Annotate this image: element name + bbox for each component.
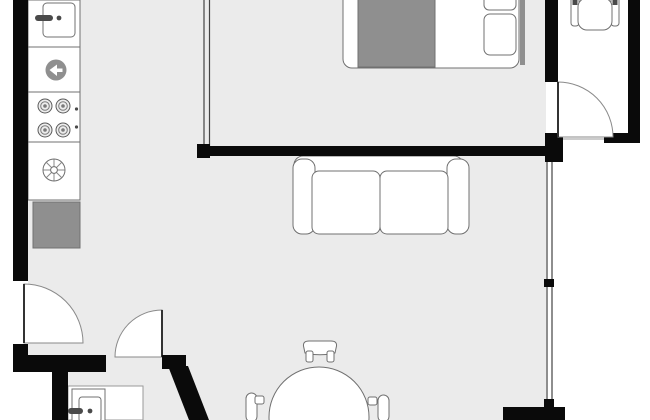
burner-icon — [56, 99, 70, 113]
bathroom-sink-basin — [79, 397, 101, 420]
wall-balcony-left — [545, 0, 558, 82]
balcony-chair-hinge-icon — [613, 0, 618, 5]
stove-knob-icon — [75, 107, 78, 110]
burner-icon — [56, 123, 70, 137]
bathroom-sink — [68, 389, 105, 420]
wall-bathroom-stem — [52, 372, 68, 420]
burner-icon — [38, 123, 52, 137]
window-mullion — [544, 279, 554, 287]
balcony-chair — [571, 0, 619, 30]
wall-right-exterior — [628, 0, 640, 143]
stove-body — [28, 92, 80, 142]
wall-hall-left — [13, 355, 106, 372]
sofa-cushion-left — [312, 171, 380, 234]
outside-bottom-left — [0, 372, 52, 420]
faucet-icon — [68, 408, 83, 414]
burner-icon — [38, 99, 52, 113]
kitchen-sink — [28, 0, 80, 47]
wall-bedroom-living — [197, 146, 547, 156]
floor-plan — [0, 0, 650, 420]
sofa-cushion-right — [380, 171, 448, 234]
bed-blanket — [358, 0, 435, 67]
bed-headboard — [520, 0, 525, 65]
dishwasher — [28, 47, 80, 92]
sofa-armrest-right — [447, 159, 469, 234]
balcony-chair-hinge-icon — [573, 0, 578, 5]
stove-knob-icon — [75, 125, 78, 128]
sofa — [293, 156, 469, 234]
kitchen-counter — [33, 202, 80, 248]
faucet-icon — [35, 15, 53, 21]
floor-plan-canvas — [0, 0, 650, 420]
stove — [28, 92, 80, 142]
faucet-dot-icon — [88, 409, 93, 414]
washer-hub-icon — [51, 167, 58, 174]
bed — [343, 0, 525, 68]
balcony-chair-seat — [578, 0, 612, 30]
bed-pillow — [484, 14, 516, 55]
wall-bottom-right-block — [503, 407, 565, 420]
faucet-dot-icon — [57, 16, 62, 21]
window-mullion — [544, 399, 554, 407]
washing-machine — [28, 142, 80, 200]
wall-left-upper — [13, 0, 28, 281]
bed-pillow — [484, 0, 516, 10]
